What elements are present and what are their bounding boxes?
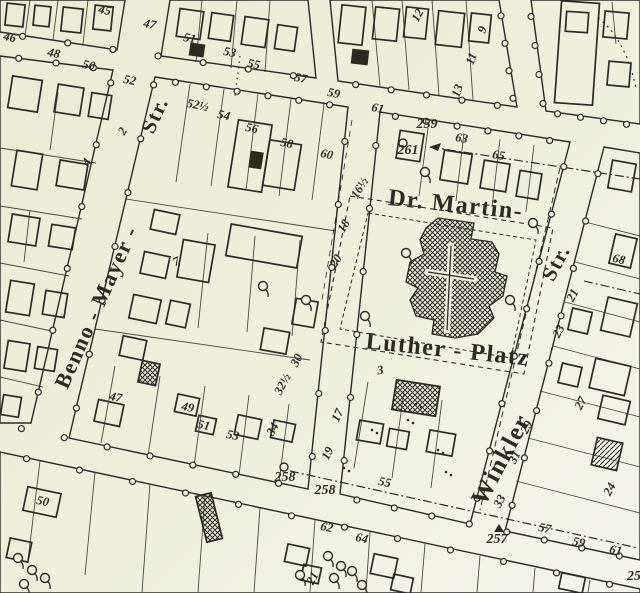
boundary-stone-icon [77, 467, 83, 473]
boundary-stone-icon [558, 313, 564, 319]
benchmark-triangle-icon [494, 524, 504, 532]
building-footprint [274, 25, 297, 52]
parcel-division-line [0, 263, 69, 276]
tree-icon [421, 168, 431, 184]
building-footprint [11, 150, 42, 190]
house-number: 62 [319, 519, 334, 535]
boundary-stone-icon [342, 524, 348, 530]
boundary-stone-icon [601, 118, 607, 124]
house-number: 4 [78, 156, 94, 169]
boundary-stone-icon [236, 501, 242, 507]
parcel-division-line [53, 0, 58, 40]
building-footprint [138, 360, 160, 385]
boundary-stone-icon [547, 138, 553, 144]
house-number: 60 [319, 146, 335, 162]
house-number: 18 [334, 216, 353, 235]
parcel-division-line [372, 0, 380, 86]
boundary-stone-icon [183, 490, 189, 496]
boundary-stone-icon [494, 102, 500, 108]
boundary-stone-icon [108, 80, 114, 86]
courtyard-dots-icon [371, 429, 379, 435]
parcel-division-line [421, 544, 425, 592]
labels-layer: Benno - Mayer -Str.Dr. Martin-Luther - P… [1, 2, 640, 588]
house-number: 53 [222, 44, 237, 60]
house-number: 55 [377, 474, 392, 490]
house-number: 61 [370, 100, 385, 116]
building-footprint [372, 7, 399, 41]
boundary-stone-icon [373, 143, 379, 149]
boundary-stone-icon [485, 128, 491, 134]
house-number: 68 [611, 251, 627, 268]
boundary-stone-icon [50, 327, 56, 333]
boundary-stone-icon [151, 82, 157, 88]
tree-icon [348, 567, 358, 583]
boundary-stone-icon [429, 513, 435, 519]
boundary-stone-icon [454, 123, 460, 129]
building-footprint [440, 150, 472, 184]
boundary-stone-icon [524, 306, 530, 312]
building-footprint [338, 5, 366, 45]
house-number: 16½ [348, 174, 372, 200]
boundary-stone-icon [554, 570, 560, 576]
boundary-stone-icon [79, 204, 85, 210]
boundary-stone-icon [502, 40, 508, 46]
boundary-stone-icon [20, 33, 26, 39]
boundary-stone-icon [555, 111, 561, 117]
house-number: 57 [293, 70, 309, 86]
boundary-stone-icon [532, 43, 538, 49]
tree-icon [324, 552, 334, 568]
boundary-stone-icon [578, 114, 584, 120]
boundary-stone-icon [501, 559, 507, 565]
parcel-division-line [83, 0, 88, 44]
parcel-division-line [95, 329, 310, 360]
parcel-division-line [148, 376, 160, 456]
boundary-stone-icon [506, 68, 512, 74]
parcel-division-line [516, 481, 640, 513]
courtyard-dots-icon [343, 467, 351, 473]
building-footprint [241, 17, 269, 48]
building-footprint [129, 294, 161, 323]
building-footprint [140, 252, 170, 279]
building-footprint [284, 544, 309, 566]
boundary-stone-icon [395, 536, 401, 542]
boundary-stone-icon [541, 537, 547, 543]
boundary-stone-icon [147, 453, 153, 459]
building-footprint [208, 13, 233, 42]
building-footprint [555, 1, 600, 105]
boundary-stone-icon [607, 581, 613, 587]
tree-icon [302, 296, 312, 312]
boundary-stone-icon [130, 479, 136, 485]
tree-icon [529, 219, 539, 235]
boundary-stone-icon [534, 408, 540, 414]
boundary-stone-icon [233, 471, 239, 477]
parcel-division-line [142, 484, 150, 592]
boundary-stone-icon [499, 401, 505, 407]
cadastral-map: Benno - Mayer -Str.Dr. Martin-Luther - P… [0, 0, 640, 593]
benchmark-number: 257 [486, 532, 509, 547]
house-number: 24 [600, 480, 619, 498]
benchmark-number: 258 [274, 470, 296, 485]
building-footprint [4, 341, 30, 372]
boundary-stone-icon [309, 454, 315, 460]
boundary-stone-icon [18, 426, 24, 432]
boundary-stone-icon [624, 121, 630, 127]
house-number: 64 [354, 530, 369, 546]
building-footprint [226, 224, 302, 268]
parcel-division-line [533, 568, 535, 592]
survey-dashed-line [584, 281, 640, 294]
building-footprint [166, 300, 191, 328]
tree-icon [330, 574, 340, 590]
building-footprint [356, 420, 383, 444]
building-footprint [5, 3, 25, 27]
boundary-stone-icon [348, 395, 354, 401]
building-footprint [61, 7, 83, 33]
parcel-division-line [585, 222, 640, 236]
house-number: 30 [287, 351, 306, 370]
house-number: 63 [454, 130, 469, 146]
boundary-stone-icon [510, 95, 516, 101]
boundary-stone-icon [335, 202, 341, 208]
tree-icon [28, 566, 38, 582]
boundary-stone-icon [110, 46, 116, 52]
house-number: 27 [571, 394, 590, 413]
boundary-stone-icon [289, 513, 295, 519]
map-canvas: Benno - Mayer -Str.Dr. Martin-Luther - P… [0, 0, 640, 593]
building-footprint [8, 214, 40, 246]
boundary-stone-icon [200, 60, 206, 66]
building-footprint [391, 574, 414, 593]
parcel-division-line [85, 472, 95, 575]
benchmark-number: 261 [397, 143, 419, 158]
boundary-stone-icon [61, 435, 67, 441]
house-number: 3 [375, 363, 385, 378]
boundary-stone-icon [392, 113, 398, 119]
building-footprint [6, 280, 35, 315]
boundary-stone-icon [448, 547, 454, 553]
house-number: 53 [225, 427, 240, 443]
boundary-stone-icon [155, 53, 161, 59]
house-number: 9 [475, 24, 491, 35]
boundary-stone-icon [561, 164, 567, 170]
parcel-division-line [0, 320, 56, 332]
boundary-stone-icon [65, 40, 71, 46]
boundary-stone-icon [583, 218, 589, 224]
building-footprint [392, 380, 440, 417]
building-footprint [589, 358, 631, 395]
house-number: 13 [449, 82, 466, 99]
building-footprint [426, 430, 455, 456]
parcel-division-line [526, 145, 534, 212]
boundary-stone-icon [104, 444, 110, 450]
boundary-stone-icon [360, 269, 366, 275]
building-footprint [1, 395, 22, 418]
boundary-stone-icon [190, 462, 196, 468]
house-number: 46 [1, 29, 18, 46]
house-number: 11 [463, 51, 480, 67]
tree-icon [14, 554, 24, 570]
house-number: 51 [196, 417, 211, 433]
boundary-stone-icon [570, 265, 576, 271]
courtyard-dots-icon [407, 419, 415, 425]
boundary-stone-icon [548, 211, 554, 217]
building-footprint [8, 76, 43, 112]
church-building [406, 218, 507, 338]
parcel-division-line [528, 438, 640, 467]
house-number: 50 [35, 493, 51, 509]
parcel-division-line [477, 556, 480, 592]
house-number: 54 [216, 107, 231, 123]
building-footprint [591, 437, 623, 470]
building-footprint [435, 11, 464, 48]
courtyard-dots-icon [445, 471, 453, 477]
boundary-stone-icon [342, 139, 348, 145]
house-number: 56 [244, 120, 260, 136]
parcel-division-line [28, 461, 40, 560]
building-footprint [119, 336, 147, 361]
house-number: 34 [263, 420, 282, 438]
boundary-stone-icon [388, 87, 394, 93]
boundary-stone-icon [341, 458, 347, 464]
boundary-stone-icon [540, 101, 546, 107]
parcel-division-line [254, 508, 260, 592]
parcel-division-line [211, 89, 224, 186]
boundary-stone-icon [391, 505, 397, 511]
boundary-stone-icon [546, 360, 552, 366]
building-footprint [568, 308, 592, 334]
building-footprint [260, 328, 289, 354]
boundary-stone-icon [172, 79, 178, 85]
building-footprint [150, 210, 180, 235]
street-label: Str. [136, 93, 174, 137]
boundary-stone-icon [516, 133, 522, 139]
building-footprint [42, 290, 67, 317]
parcel-division-line [0, 377, 43, 387]
house-number: 17 [328, 406, 346, 424]
building-footprint [480, 160, 510, 192]
boundary-stone-icon [498, 13, 504, 19]
boundary-stone-icon [265, 93, 271, 99]
boundary-stone-icon [322, 328, 328, 334]
parcel-division-line [247, 236, 255, 332]
boundary-stone-icon [354, 332, 360, 338]
boundary-stone-icon [367, 206, 373, 212]
benchmark-number: 259 [416, 117, 438, 132]
boundary-stone-icon [16, 55, 22, 61]
boundary-stone-icon [595, 171, 601, 177]
tree-icon [259, 282, 269, 298]
boundary-stone-icon [509, 502, 515, 508]
boundary-stone-icon [296, 97, 302, 103]
boundary-stone-icon [93, 142, 99, 148]
house-number: 52½ [186, 96, 211, 114]
building-footprint [196, 493, 223, 542]
building-footprint [177, 240, 215, 283]
parcel-division-line [575, 262, 640, 279]
boundary-stone-icon [125, 190, 131, 196]
parcel-division-line [246, 94, 258, 190]
boundary-stone-icon [73, 405, 79, 411]
house-number: 52 [122, 72, 137, 88]
boundary-stone-icon [424, 92, 430, 98]
house-number: 19 [318, 444, 336, 462]
house-number: 47 [107, 389, 124, 406]
building-footprint [54, 84, 84, 116]
boundary-stone-icon [536, 72, 542, 78]
house-number: 23 [549, 322, 568, 340]
boundary-stone-icon [138, 136, 144, 142]
boundary-stone-icon [353, 82, 359, 88]
boundary-stone-icon [64, 265, 70, 271]
boundary-stone-icon [354, 497, 360, 503]
parcel-division-line [101, 366, 115, 443]
house-number: 45 [96, 2, 112, 19]
tree-icon [361, 312, 371, 328]
parcel-division-line [588, 580, 590, 592]
building-footprint [601, 297, 638, 337]
boundary-stone-icon [528, 14, 534, 20]
boundary-stone-icon [203, 84, 209, 90]
boundary-stone-icon [24, 456, 30, 462]
tree-icon [506, 296, 516, 312]
parcel-division-line [24, 210, 30, 262]
building-footprint [603, 11, 629, 39]
house-number: 57 [537, 520, 553, 536]
boundary-stone-icon [234, 88, 240, 94]
house-number: 48 [45, 45, 62, 62]
tree-icon [41, 574, 51, 590]
tree-icon [20, 580, 30, 593]
building-footprint [88, 93, 112, 120]
building-footprint [607, 61, 631, 87]
boundary-stone-icon [35, 389, 41, 395]
benchmark-number: 25 [626, 569, 640, 584]
house-number: 47 [141, 16, 158, 33]
house-number: 2 [114, 125, 130, 138]
boundary-stone-icon [466, 521, 472, 527]
house-number: 32½ [271, 371, 294, 398]
parcel-division-line [50, 92, 58, 150]
benchmark-circle-icon [280, 463, 288, 471]
house-number: 59 [326, 85, 342, 101]
building-footprint [249, 151, 263, 169]
house-number: 58 [279, 135, 295, 151]
boundary-stone-icon [327, 102, 333, 108]
building-footprint [558, 363, 582, 387]
house-number: 65 [491, 147, 506, 163]
building-footprint [33, 5, 51, 27]
building-footprint [351, 49, 368, 65]
benchmark-arrow-icon [429, 143, 441, 151]
parcel-division-line [354, 382, 368, 468]
building-footprint [565, 11, 588, 32]
house-number: 49 [179, 399, 196, 416]
benchmark-number: 258 [314, 483, 336, 498]
boundary-stone-icon [316, 391, 322, 397]
street-label: Benno - Mayer - [49, 222, 143, 392]
